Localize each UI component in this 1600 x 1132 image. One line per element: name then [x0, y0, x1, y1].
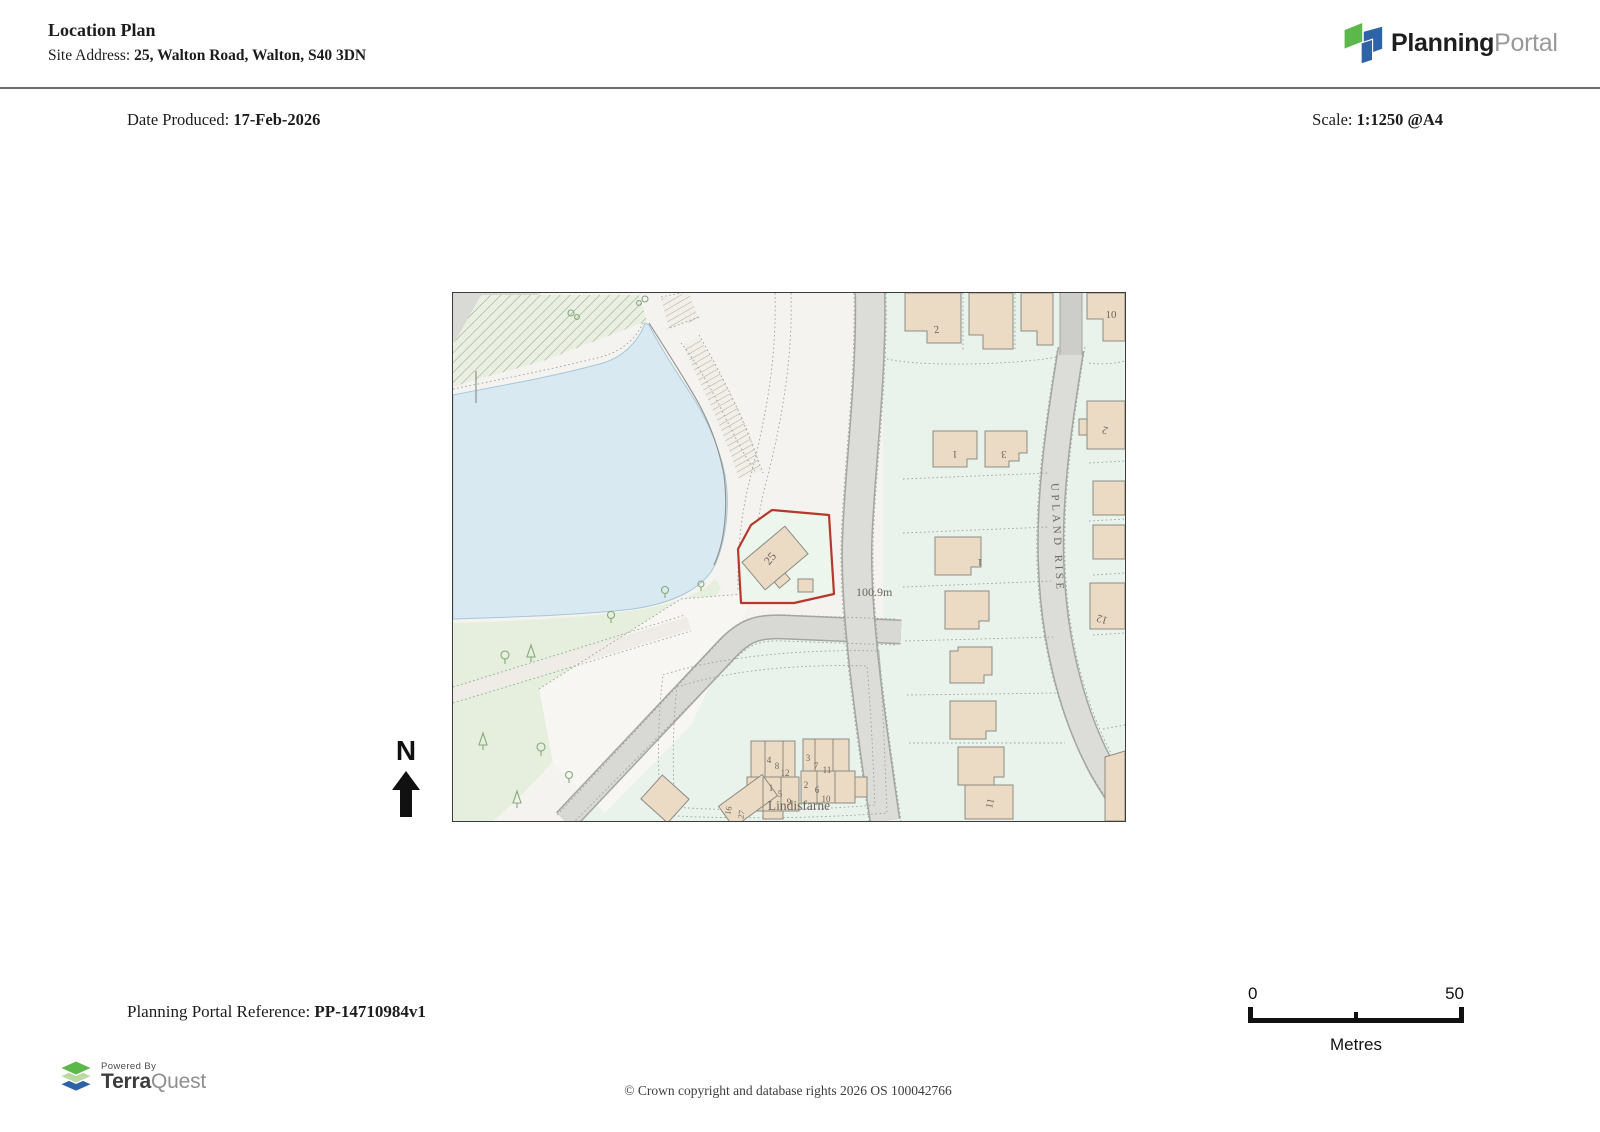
date-produced-value: 17-Feb-2026: [233, 110, 320, 129]
map-label: 1: [952, 448, 958, 460]
planning-reference-value: PP-14710984v1: [314, 1002, 425, 1021]
site-address-value: 25, Walton Road, Walton, S40 3DN: [134, 47, 366, 64]
logo-text-planning: Planning: [1391, 29, 1494, 57]
scale-bar-numbers: 0 50: [1248, 984, 1464, 1004]
map-label: 9: [787, 797, 792, 807]
site-address-label: Site Address:: [48, 47, 134, 64]
scale-bar-units: Metres: [1248, 1035, 1464, 1055]
map-label: 8: [775, 761, 780, 771]
map-label: 27: [735, 809, 746, 819]
planning-reference: Planning Portal Reference: PP-14710984v1: [127, 1002, 426, 1022]
date-produced-label: Date Produced:: [127, 110, 233, 129]
logo-text-quest: Quest: [151, 1070, 206, 1093]
scale-bar-start: 0: [1248, 984, 1257, 1004]
terraquest-wordmark: TerraQuest: [101, 1072, 206, 1092]
scale-label: Scale:: [1312, 110, 1356, 129]
map-label: 100.9m: [856, 585, 893, 599]
planning-reference-label: Planning Portal Reference:: [127, 1002, 314, 1021]
header-divider: [0, 87, 1600, 89]
map-label: 11: [823, 765, 832, 775]
terraquest-text: Powered By TerraQuest: [101, 1058, 206, 1096]
map-label: 3: [1001, 448, 1007, 460]
logo-text-portal: Portal: [1494, 29, 1558, 57]
logo-text-terra: Terra: [101, 1070, 151, 1093]
map-label: 16: [722, 805, 733, 815]
driveway: [1060, 293, 1082, 355]
map-label: 7: [814, 761, 819, 771]
map-label: 1: [769, 783, 774, 793]
date-produced: Date Produced: 17-Feb-2026: [127, 110, 320, 130]
scale-bar: 0 50 Metres: [1248, 984, 1464, 1055]
map-label: 1: [977, 556, 983, 568]
page-title: Location Plan: [48, 20, 156, 41]
page: Location Plan Site Address: 25, Walton R…: [0, 0, 1600, 1132]
map-label: 5: [778, 789, 783, 799]
map-frame: 2101321121125100.9mUPLAND RISELindisfarn…: [452, 292, 1126, 822]
planning-portal-logo-icon: [1340, 20, 1386, 66]
map-label: 12: [781, 768, 790, 778]
outbuilding: [798, 579, 813, 592]
map-label: 10: [1106, 309, 1118, 321]
map-label: 6: [815, 785, 820, 795]
map-label: 2: [804, 780, 809, 790]
planning-portal-logo: PlanningPortal: [1340, 20, 1558, 66]
site-address: Site Address: 25, Walton Road, Walton, S…: [48, 47, 366, 65]
map-label: 10: [822, 794, 832, 804]
terraquest-logo-icon: [58, 1058, 94, 1096]
copyright-notice: © Crown copyright and database rights 20…: [452, 1083, 1124, 1099]
location-map: 2101321121125100.9mUPLAND RISELindisfarn…: [453, 293, 1125, 821]
north-arrow-icon: [388, 771, 424, 819]
map-label: 4: [767, 755, 772, 765]
north-label: N: [388, 735, 424, 767]
terraquest-logo: Powered By TerraQuest: [58, 1058, 206, 1096]
map-label: 3: [806, 753, 811, 763]
planning-portal-wordmark: PlanningPortal: [1391, 29, 1558, 58]
scale-bar-icon: [1248, 1004, 1464, 1026]
scale-note: Scale: 1:1250 @A4: [1312, 110, 1443, 130]
scale-bar-end: 50: [1445, 984, 1464, 1004]
scale-value: 1:1250 @A4: [1357, 110, 1443, 129]
